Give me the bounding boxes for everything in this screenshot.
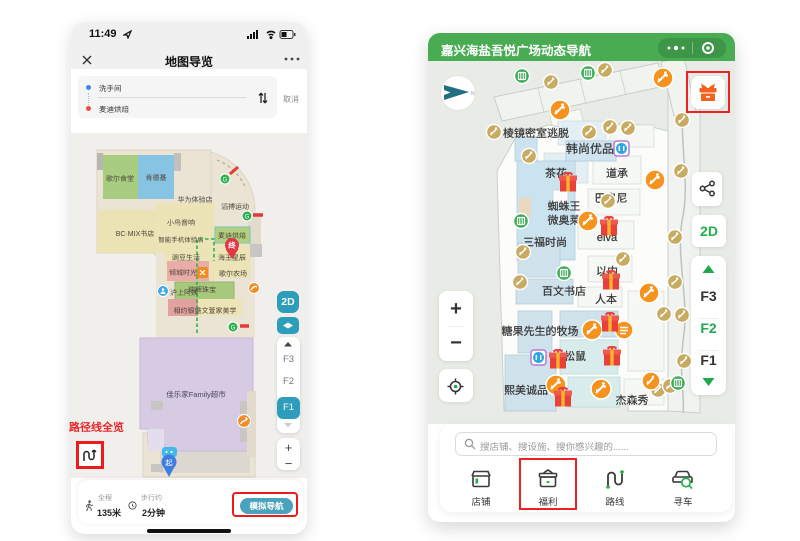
svg-text:G: G (223, 178, 228, 184)
svg-text:肯德基: 肯德基 (146, 174, 167, 182)
svg-text:棱镜密室逃脱: 棱镜密室逃脱 (503, 127, 569, 140)
svg-text:佳乐家Family超市: 佳乐家Family超市 (166, 390, 226, 399)
svg-text:三福时尚: 三福时尚 (523, 236, 567, 249)
svg-text:BC·MIX书店: BC·MIX书店 (116, 230, 155, 238)
svg-text:歌尔农场: 歌尔农场 (219, 270, 247, 278)
svg-text:蜘蛛王: 蜘蛛王 (548, 200, 581, 213)
svg-text:起: 起 (165, 459, 173, 468)
svg-text:华为体验店: 华为体验店 (178, 196, 213, 204)
svg-text:韩尚优品: 韩尚优品 (566, 142, 614, 156)
svg-text:微奥莱: 微奥莱 (548, 214, 581, 227)
svg-text:道承: 道承 (606, 167, 628, 180)
svg-text:沪上阿姨: 沪上阿姨 (170, 289, 198, 297)
svg-text:倾城时光: 倾城时光 (169, 269, 197, 277)
svg-text:相约银盛文萱家美学: 相约银盛文萱家美学 (174, 307, 237, 315)
svg-text:滔搏运动: 滔搏运动 (221, 203, 249, 211)
svg-text:杰森秀: 杰森秀 (616, 394, 649, 407)
svg-text:N: N (471, 91, 475, 97)
svg-text:人本: 人本 (595, 293, 617, 306)
svg-text:百文书店: 百文书店 (542, 285, 586, 298)
svg-text:智能手机体验店: 智能手机体验店 (158, 236, 204, 244)
svg-text:糖果先生的牧场: 糖果先生的牧场 (502, 325, 579, 338)
svg-text:小鸟音响: 小鸟音响 (167, 219, 195, 227)
svg-text:熙美诚品: 熙美诚品 (504, 384, 548, 397)
svg-text:豌豆生活: 豌豆生活 (172, 254, 200, 262)
svg-text:松鼠: 松鼠 (564, 350, 586, 363)
svg-text:终: 终 (227, 241, 236, 250)
svg-text:G: G (245, 215, 250, 221)
svg-text:G: G (231, 326, 236, 332)
svg-text:歌尔食堂: 歌尔食堂 (106, 175, 134, 183)
